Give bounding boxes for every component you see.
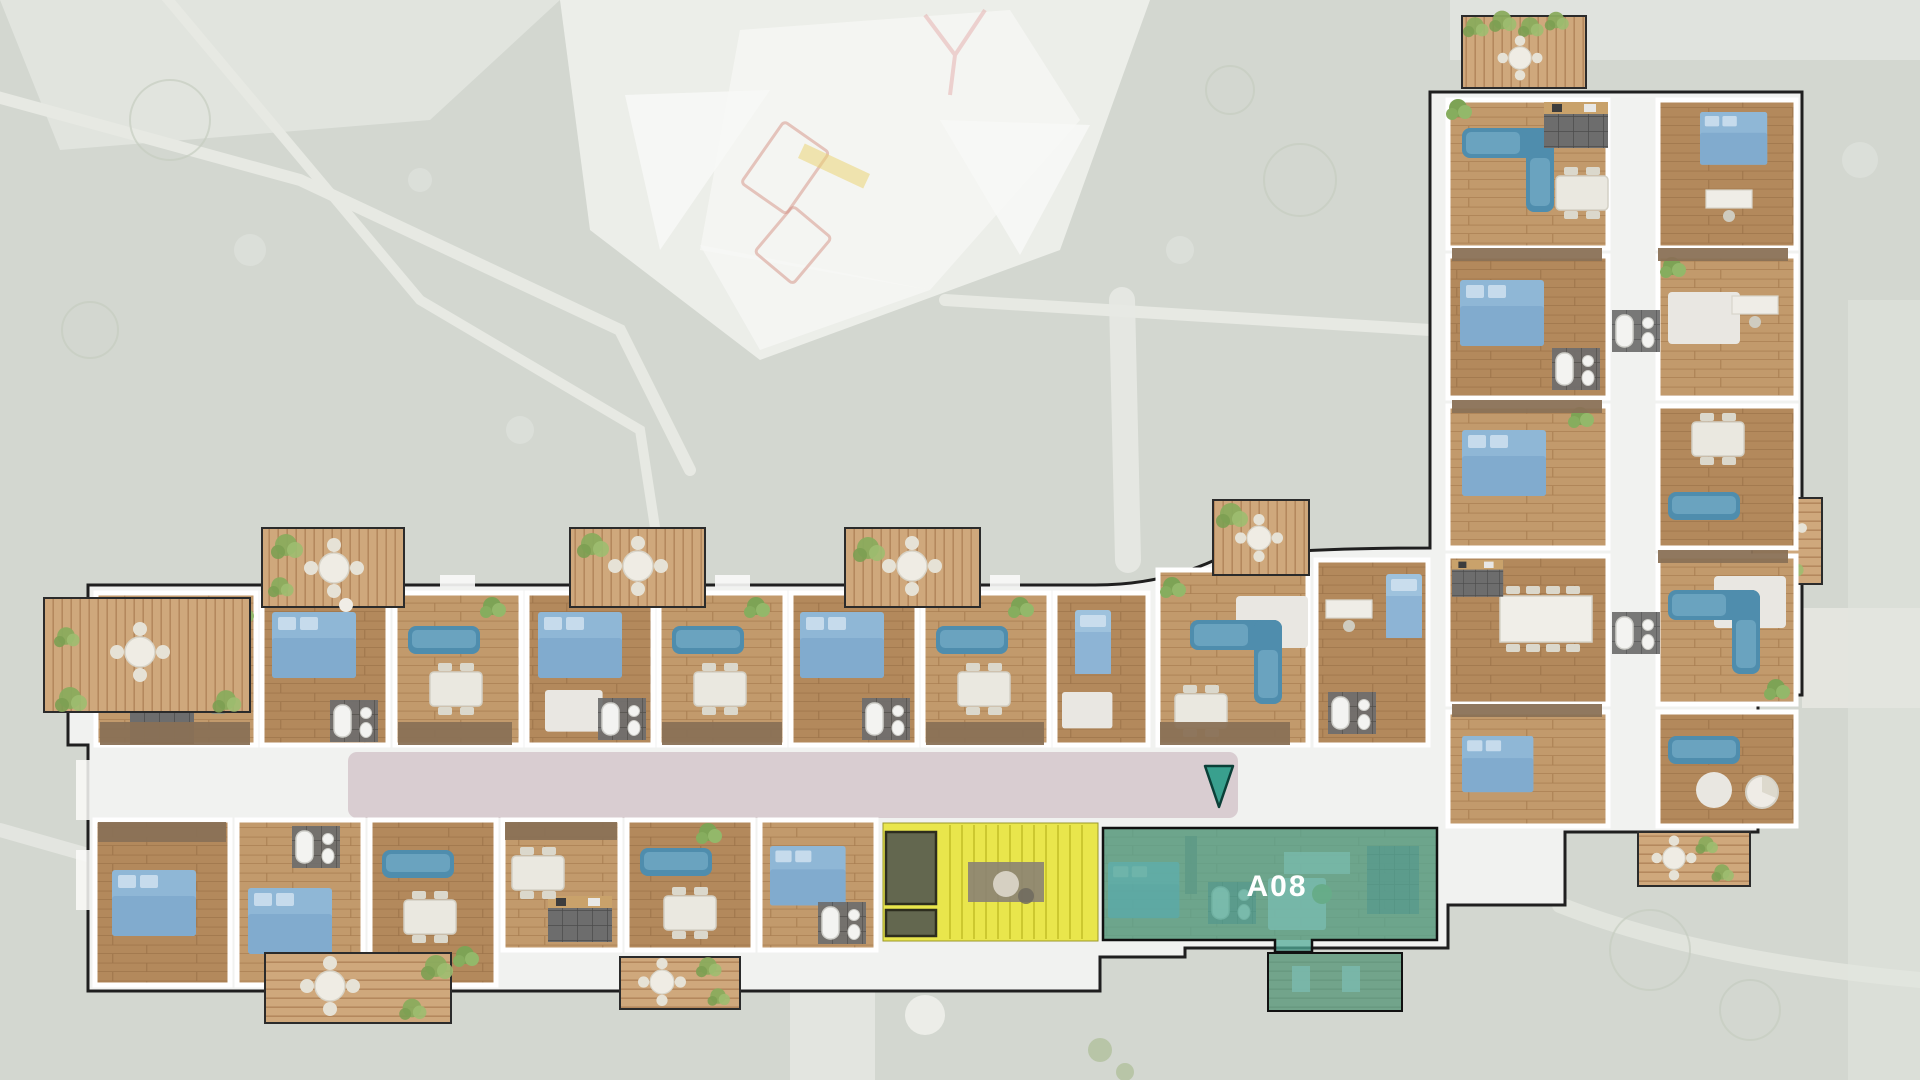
balcony-deck <box>570 528 705 607</box>
apartment-room <box>1658 406 1796 548</box>
site-plan-svg: A08 <box>0 0 1920 1080</box>
balcony-deck <box>845 528 980 607</box>
corridor <box>348 752 1238 818</box>
terrace-deck <box>620 957 740 1009</box>
apartment-room <box>95 820 230 985</box>
terrace-deck <box>265 953 453 1023</box>
apartment-room <box>1658 712 1796 826</box>
unit-a08-terrace[interactable] <box>1268 953 1402 1011</box>
elevator-shaft <box>886 832 936 904</box>
apartment-room <box>1448 556 1608 704</box>
apartment-room <box>1448 256 1608 398</box>
balcony-deck <box>262 528 404 612</box>
elevator-shaft <box>886 910 936 936</box>
stair-core <box>883 823 1098 941</box>
apartment-room <box>1158 570 1308 745</box>
apartment-room <box>1658 100 1796 248</box>
apartment-room <box>1448 406 1608 548</box>
apartment-room <box>791 593 917 745</box>
apartment-room <box>627 820 753 950</box>
apartment-room <box>760 820 876 950</box>
unit-a08-label: A08 <box>1246 870 1307 903</box>
apartment-room <box>262 593 388 745</box>
apartment-room <box>503 820 620 950</box>
apartment-room <box>527 593 653 745</box>
balcony-deck <box>1638 832 1750 886</box>
apartment-room <box>1658 256 1796 398</box>
roof-terrace-deck <box>1462 11 1586 88</box>
floorplan-canvas: A08 <box>0 0 1920 1080</box>
apartment-room <box>1316 560 1428 745</box>
apartment-room <box>1055 593 1148 745</box>
balcony-deck <box>1213 500 1309 575</box>
terrace-deck <box>44 598 250 713</box>
apartment-room <box>1448 712 1608 826</box>
unit-a08[interactable]: A08 <box>1103 828 1437 952</box>
unit-a08-terrace-highlight[interactable] <box>1268 953 1402 1011</box>
apartment-room <box>1658 556 1796 704</box>
apartment-room <box>1446 99 1608 248</box>
